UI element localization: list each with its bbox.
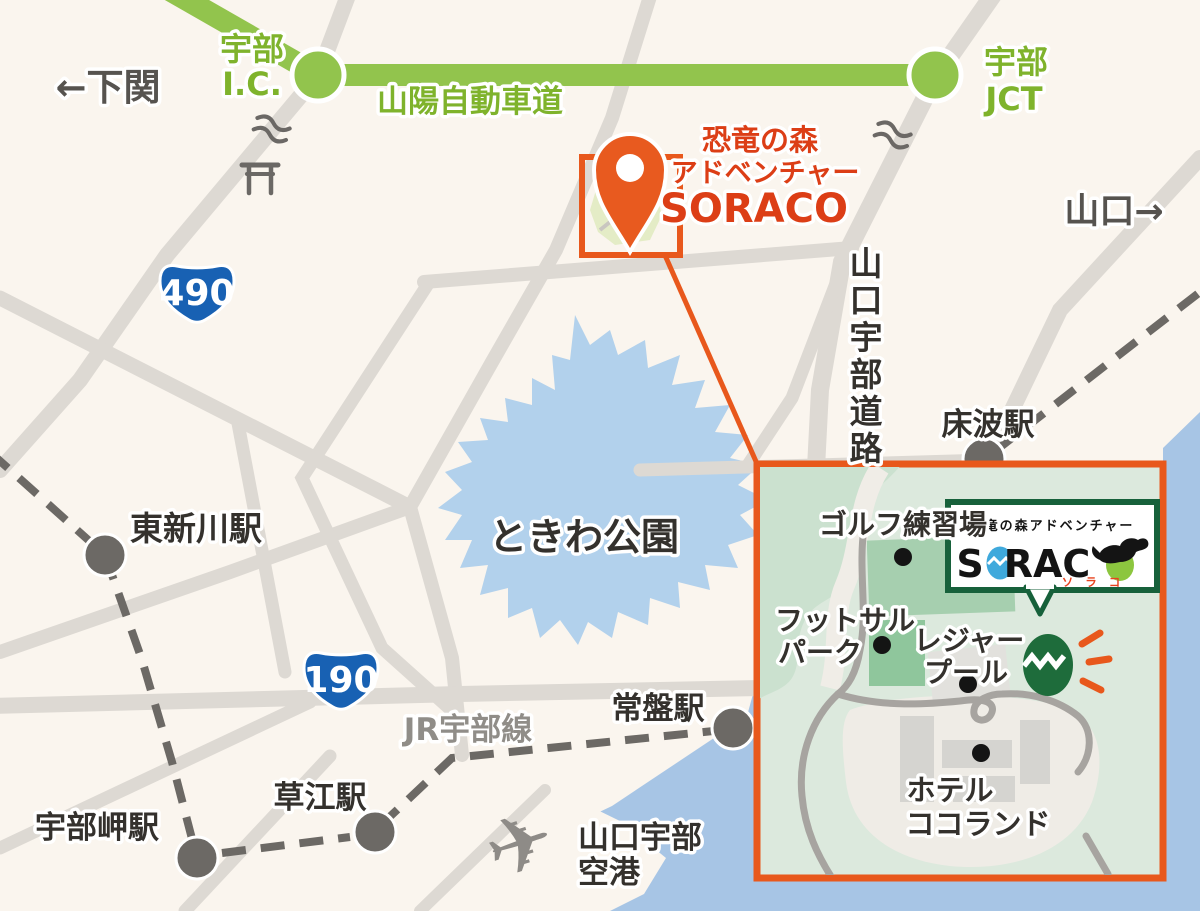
- inset-detail-panel: 恐竜の森アドベンチャー S RAC ソ ラ コ ゴルフ練習場 フットサル パーク…: [757, 464, 1163, 878]
- label-pool-2: プール: [924, 656, 1008, 689]
- access-map: ✈: [0, 0, 1200, 911]
- svg-text:190: 190: [303, 660, 378, 701]
- label-destination-2: アドベンチャー: [671, 158, 860, 189]
- route-490-shield: 490: [159, 266, 234, 323]
- svg-text:道: 道: [850, 392, 883, 431]
- logo-katakana: ソ ラ コ: [1062, 575, 1125, 589]
- svg-text:口: 口: [850, 281, 883, 320]
- station-marker-higashi-shinkawa: [84, 534, 126, 576]
- ube-ic-node: [292, 49, 344, 101]
- label-yamaguchi-ube-road: 山 口 宇 部 道 路: [850, 244, 884, 468]
- station-marker-tokiwa: [712, 707, 754, 749]
- destination-egg-icon: [1023, 634, 1073, 696]
- label-tokiwa-park: ときわ公園: [489, 515, 679, 559]
- svg-text:部: 部: [850, 355, 883, 394]
- label-golf: ゴルフ練習場: [819, 508, 987, 541]
- label-airport-2: 空港: [578, 855, 641, 891]
- label-station-ube-misaki: 宇部岬駅: [35, 810, 159, 846]
- label-station-higashi-shinkawa: 東新川駅: [130, 509, 262, 548]
- logo-word-s: S: [956, 542, 983, 586]
- logo-tagline: 恐竜の森アドベンチャー: [970, 518, 1135, 534]
- label-ube-jct-2: JCT: [983, 80, 1042, 118]
- label-ube-jct-1: 宇部: [984, 43, 1048, 81]
- label-station-tokiwa: 常盤駅: [612, 691, 705, 727]
- label-futsal-2: パーク: [778, 636, 862, 669]
- label-jr-ube-line: JR宇部線: [402, 712, 532, 748]
- golf-dot: [894, 548, 912, 566]
- svg-text:宇: 宇: [850, 318, 883, 357]
- label-destination-3: SORACO: [660, 186, 848, 232]
- station-marker-ube-misaki: [176, 837, 218, 879]
- route-190-shield: 190: [303, 653, 378, 710]
- ube-jct-node: [909, 49, 961, 101]
- label-ube-ic-2: I.C.: [222, 65, 282, 103]
- label-direction-east: 山口→: [1064, 192, 1163, 232]
- label-direction-west: ←下関: [55, 66, 160, 109]
- label-ube-ic-1: 宇部: [220, 30, 284, 68]
- access-map-canvas: ✈: [0, 0, 1200, 911]
- label-expressway: 山陽自動車道: [377, 84, 563, 120]
- label-airport-1: 山口宇部: [578, 820, 702, 856]
- label-futsal-1: フットサル: [775, 604, 915, 637]
- label-hotel-2: ココランド: [905, 807, 1050, 841]
- futsal-dot: [873, 636, 891, 654]
- svg-text:490: 490: [159, 273, 234, 314]
- label-station-kusae: 草江駅: [274, 780, 367, 816]
- station-marker-kusae: [354, 811, 396, 853]
- hotel-dot: [972, 744, 990, 762]
- svg-text:路: 路: [850, 429, 884, 468]
- label-hotel-1: ホテル: [906, 773, 993, 807]
- label-station-tokonami: 床波駅: [942, 407, 1035, 443]
- label-destination-1: 恐竜の森: [702, 123, 819, 157]
- label-pool-1: レジャー: [914, 624, 1025, 657]
- svg-text:山: 山: [850, 244, 883, 283]
